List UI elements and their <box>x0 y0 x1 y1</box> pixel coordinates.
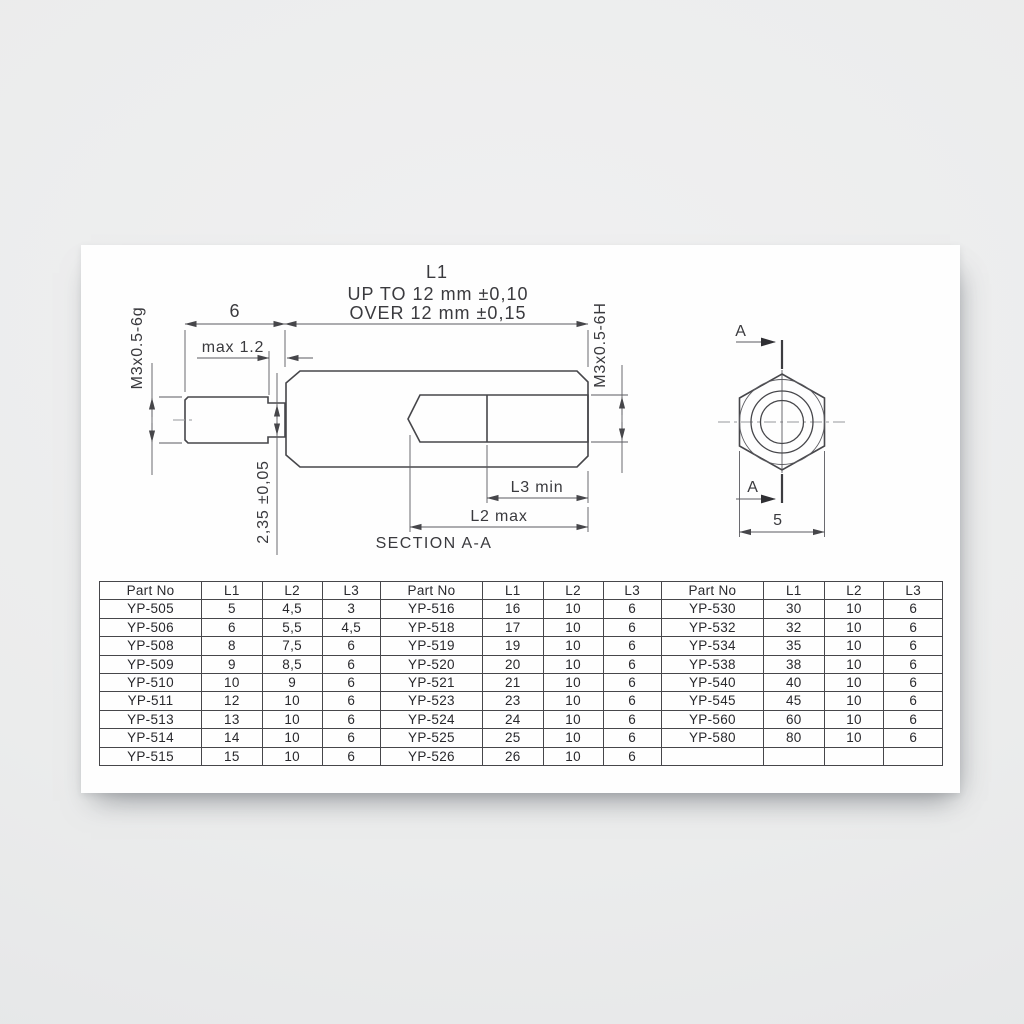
table-cell: 6 <box>322 729 380 747</box>
table-cell: 6 <box>884 710 943 728</box>
table-cell: 45 <box>763 692 824 710</box>
table-cell: 20 <box>482 655 543 673</box>
table-cell: 4,5 <box>262 600 322 618</box>
table-cell: YP-509 <box>100 655 202 673</box>
table-cell: 10 <box>262 692 322 710</box>
table-cell: 10 <box>824 674 884 692</box>
column-header: L1 <box>763 582 824 600</box>
table-cell: YP-508 <box>100 637 202 655</box>
table-row: YP-51313106YP-52424106YP-56060106 <box>100 710 943 728</box>
table-cell <box>884 747 943 765</box>
stud-length-dim-text: 6 <box>229 301 240 321</box>
table-cell: 5,5 <box>262 618 322 636</box>
table-cell: YP-513 <box>100 710 202 728</box>
table-cell: 6 <box>603 637 661 655</box>
table-cell: 15 <box>202 747 263 765</box>
column-header: L3 <box>884 582 943 600</box>
table-cell: 6 <box>884 655 943 673</box>
table-cell: 3 <box>322 600 380 618</box>
table-cell: YP-526 <box>380 747 482 765</box>
table-cell: 23 <box>482 692 543 710</box>
table-cell: 6 <box>202 618 263 636</box>
column-header: L2 <box>543 582 603 600</box>
column-header: Part No <box>100 582 202 600</box>
undercut-width-dimension: max 1.2 <box>197 339 313 395</box>
table-cell: 10 <box>543 618 603 636</box>
table-cell: YP-518 <box>380 618 482 636</box>
table-cell: YP-519 <box>380 637 482 655</box>
across-flats-text: 5 <box>773 512 783 529</box>
table-cell: 35 <box>763 637 824 655</box>
table-cell: 10 <box>543 692 603 710</box>
table-cell: 30 <box>763 600 824 618</box>
table-cell: YP-580 <box>661 729 763 747</box>
l1-tolerance-line1: UP TO 12 mm ±0,10 <box>348 284 529 304</box>
table-cell: 24 <box>482 710 543 728</box>
male-thread-text: M3x0.5-6g <box>129 307 146 390</box>
table-cell: 80 <box>763 729 824 747</box>
table-row: YP-50887,56YP-51919106YP-53435106 <box>100 637 943 655</box>
table-row: YP-50554,53YP-51616106YP-53030106 <box>100 600 943 618</box>
table-cell: 6 <box>884 600 943 618</box>
table-cell: 10 <box>824 600 884 618</box>
table-cell: 6 <box>603 747 661 765</box>
column-header: L2 <box>262 582 322 600</box>
table-cell: 6 <box>322 692 380 710</box>
table-cell <box>824 747 884 765</box>
table-cell: YP-505 <box>100 600 202 618</box>
table-cell: 10 <box>824 729 884 747</box>
table-cell: 25 <box>482 729 543 747</box>
table-cell: 8,5 <box>262 655 322 673</box>
table-cell: 10 <box>543 747 603 765</box>
table-row: YP-50998,56YP-52020106YP-53838106 <box>100 655 943 673</box>
table-cell: 6 <box>322 747 380 765</box>
table-cell: 6 <box>884 618 943 636</box>
datasheet-card: L1 UP TO 12 mm ±0,10 OVER 12 mm ±0,15 6 … <box>81 245 960 793</box>
table-cell: 6 <box>884 637 943 655</box>
table-cell: 60 <box>763 710 824 728</box>
threaded-hole <box>408 395 588 442</box>
table-row: YP-51112106YP-52323106YP-54545106 <box>100 692 943 710</box>
table-cell: 4,5 <box>322 618 380 636</box>
table-cell: 26 <box>482 747 543 765</box>
column-header: L2 <box>824 582 884 600</box>
table-cell: 6 <box>603 600 661 618</box>
table-cell: 13 <box>202 710 263 728</box>
table-cell: 6 <box>884 674 943 692</box>
table-cell: YP-532 <box>661 618 763 636</box>
table-row: YP-51515106YP-52626106 <box>100 747 943 765</box>
table-cell: 10 <box>824 637 884 655</box>
table-cell: YP-510 <box>100 674 202 692</box>
table-cell: YP-506 <box>100 618 202 636</box>
table-cell: YP-525 <box>380 729 482 747</box>
undercut-diameter-dimension: 2,35 ±0,05 <box>255 373 277 555</box>
column-header: L3 <box>322 582 380 600</box>
table-cell: YP-523 <box>380 692 482 710</box>
section-arrow-label-bottom: A <box>747 479 758 496</box>
table-row: YP-50665,54,5YP-51817106YP-53232106 <box>100 618 943 636</box>
undercut-diameter-text: 2,35 ±0,05 <box>255 460 272 544</box>
table-cell: YP-540 <box>661 674 763 692</box>
table-cell: 10 <box>824 710 884 728</box>
table-cell: 5 <box>202 600 263 618</box>
table-cell: YP-515 <box>100 747 202 765</box>
table-cell: 40 <box>763 674 824 692</box>
table-cell: YP-560 <box>661 710 763 728</box>
table-cell: YP-545 <box>661 692 763 710</box>
table-cell: 6 <box>603 674 661 692</box>
table-cell: 6 <box>603 692 661 710</box>
table-cell: 17 <box>482 618 543 636</box>
table-cell: 10 <box>824 692 884 710</box>
table-cell: 6 <box>884 692 943 710</box>
table-cell: 10 <box>824 655 884 673</box>
table-cell: YP-514 <box>100 729 202 747</box>
table-cell: 9 <box>262 674 322 692</box>
column-header: L3 <box>603 582 661 600</box>
table-cell: YP-524 <box>380 710 482 728</box>
table-cell: 10 <box>543 729 603 747</box>
standoff-technical-drawing: L1 UP TO 12 mm ±0,10 OVER 12 mm ±0,15 6 … <box>81 245 960 581</box>
body-section <box>286 371 588 467</box>
spec-table-container: Part NoL1L2L3Part NoL1L2L3Part NoL1L2L3 … <box>99 581 943 766</box>
table-cell: 10 <box>262 710 322 728</box>
table-cell: 10 <box>543 674 603 692</box>
header-row: Part NoL1L2L3Part NoL1L2L3Part NoL1L2L3 <box>100 582 943 600</box>
table-cell: 10 <box>543 655 603 673</box>
table-cell: 6 <box>322 674 380 692</box>
table-cell: 38 <box>763 655 824 673</box>
table-cell: 10 <box>262 747 322 765</box>
column-header: L1 <box>482 582 543 600</box>
thread-depth-dimensions: L3 min L2 max <box>410 435 588 532</box>
length-dimensions: L1 UP TO 12 mm ±0,10 OVER 12 mm ±0,15 6 <box>185 262 588 392</box>
female-thread-text: M3x0.5-6H <box>592 302 609 387</box>
female-thread-dimension: M3x0.5-6H <box>591 302 628 473</box>
table-cell: YP-534 <box>661 637 763 655</box>
table-cell: 21 <box>482 674 543 692</box>
l1-tolerance-line2: OVER 12 mm ±0,15 <box>350 303 527 323</box>
section-arrow-label-top: A <box>735 323 746 340</box>
table-cell: 16 <box>482 600 543 618</box>
table-cell: 14 <box>202 729 263 747</box>
table-cell: 12 <box>202 692 263 710</box>
table-cell <box>661 747 763 765</box>
undercut-width-text: max 1.2 <box>202 339 265 356</box>
table-row: YP-5101096YP-52121106YP-54040106 <box>100 674 943 692</box>
l3-min-text: L3 min <box>511 479 564 496</box>
l1-dim-label: L1 <box>426 262 448 282</box>
section-caption: SECTION A-A <box>376 535 493 552</box>
table-row: YP-51414106YP-52525106YP-58080106 <box>100 729 943 747</box>
end-view: A A 5 <box>718 323 847 537</box>
column-header: L1 <box>202 582 263 600</box>
table-cell: YP-530 <box>661 600 763 618</box>
table-cell: 10 <box>543 637 603 655</box>
column-header: Part No <box>661 582 763 600</box>
column-header: Part No <box>380 582 482 600</box>
table-cell: 6 <box>884 729 943 747</box>
table-cell: 6 <box>322 637 380 655</box>
table-cell: YP-521 <box>380 674 482 692</box>
table-cell: 6 <box>603 710 661 728</box>
table-cell: YP-538 <box>661 655 763 673</box>
table-cell: 6 <box>603 618 661 636</box>
table-cell: 7,5 <box>262 637 322 655</box>
male-stud-section <box>185 397 285 443</box>
male-thread-dimension: M3x0.5-6g <box>129 307 182 475</box>
section-view <box>173 371 588 467</box>
table-cell: 10 <box>543 710 603 728</box>
table-cell: 10 <box>202 674 263 692</box>
spec-table-body: YP-50554,53YP-51616106YP-53030106YP-5066… <box>100 600 943 766</box>
table-cell <box>763 747 824 765</box>
spec-table: Part NoL1L2L3Part NoL1L2L3Part NoL1L2L3 … <box>99 581 943 766</box>
table-cell: 9 <box>202 655 263 673</box>
table-cell: YP-516 <box>380 600 482 618</box>
page-background: L1 UP TO 12 mm ±0,10 OVER 12 mm ±0,15 6 … <box>0 0 1024 1024</box>
table-cell: 32 <box>763 618 824 636</box>
table-cell: 6 <box>603 655 661 673</box>
table-cell: 6 <box>322 710 380 728</box>
table-cell: 6 <box>603 729 661 747</box>
table-cell: 10 <box>543 600 603 618</box>
table-cell: 19 <box>482 637 543 655</box>
table-cell: YP-511 <box>100 692 202 710</box>
table-cell: 10 <box>824 618 884 636</box>
table-cell: 6 <box>322 655 380 673</box>
table-cell: YP-520 <box>380 655 482 673</box>
table-cell: 8 <box>202 637 263 655</box>
l2-max-text: L2 max <box>470 508 527 525</box>
table-cell: 10 <box>262 729 322 747</box>
